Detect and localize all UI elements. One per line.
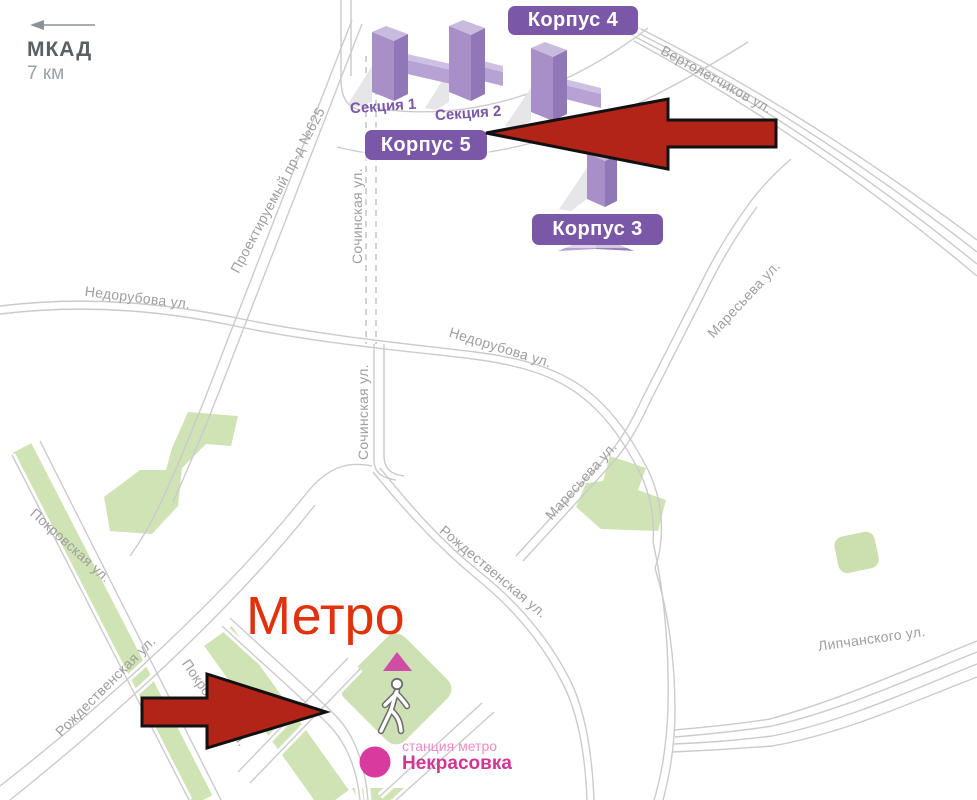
pointer-arrows-layer [0,0,977,800]
red-arrow-korpus5 [486,99,776,169]
red-arrow-metro [142,674,326,748]
map: { "scale_indicator": { "road": "МКАД", "… [0,0,977,800]
